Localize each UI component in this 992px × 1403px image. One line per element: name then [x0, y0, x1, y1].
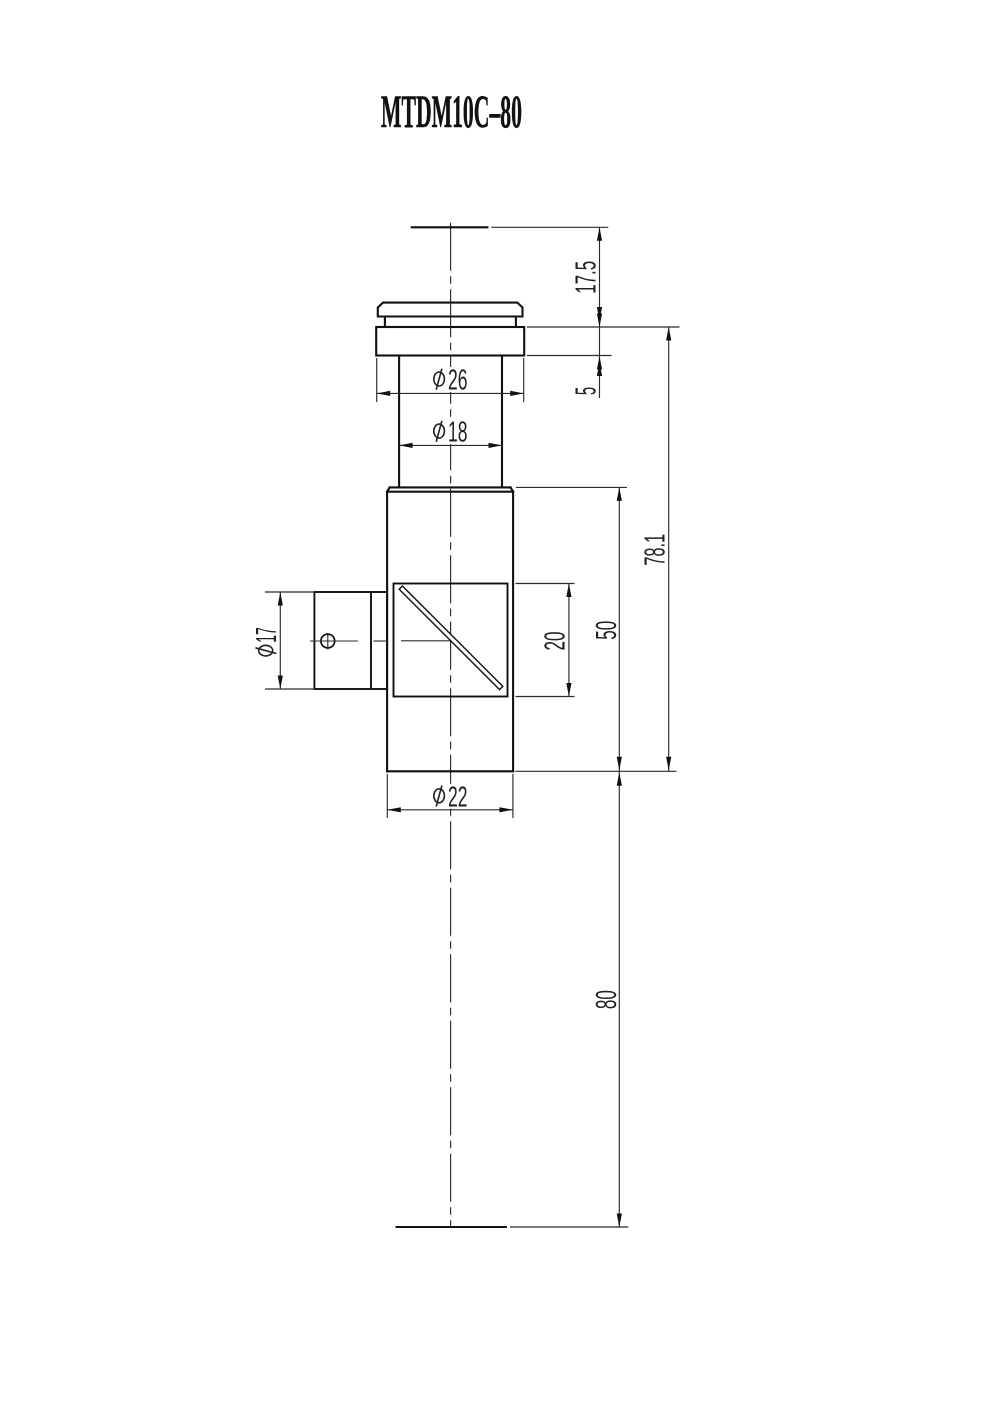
svg-text:50: 50: [591, 621, 623, 640]
svg-text:26: 26: [448, 365, 468, 397]
svg-text:17: 17: [251, 627, 283, 643]
svg-text:22: 22: [448, 781, 468, 813]
svg-text:5: 5: [570, 387, 602, 395]
svg-text:78.1: 78.1: [639, 534, 671, 566]
svg-text:MTDM10C–80: MTDM10C–80: [381, 86, 522, 138]
svg-text:80: 80: [591, 990, 623, 1009]
svg-text:17.5: 17.5: [570, 261, 602, 294]
svg-text:20: 20: [539, 632, 571, 651]
svg-text:18: 18: [448, 417, 468, 449]
